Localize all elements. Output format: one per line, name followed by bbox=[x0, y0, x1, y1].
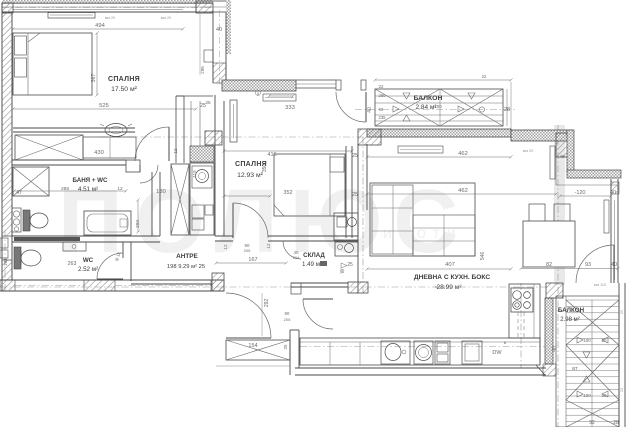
svg-text:154: 154 bbox=[248, 343, 257, 349]
svg-text:8: 8 bbox=[257, 92, 259, 96]
svg-text:ДНЕВНА С КУХН. БОКС: ДНЕВНА С КУХН. БОКС bbox=[414, 274, 490, 281]
svg-text:100: 100 bbox=[434, 104, 442, 109]
svg-text:25: 25 bbox=[352, 153, 358, 159]
svg-text:25: 25 bbox=[347, 262, 353, 268]
svg-text:12: 12 bbox=[173, 148, 178, 153]
svg-text:2.98 м²: 2.98 м² bbox=[560, 317, 579, 323]
svg-text:130: 130 bbox=[156, 189, 166, 195]
svg-text:290: 290 bbox=[135, 220, 141, 228]
svg-text:40: 40 bbox=[552, 346, 558, 352]
svg-text:82: 82 bbox=[546, 262, 552, 268]
svg-text:-120: -120 bbox=[574, 190, 585, 196]
svg-text:W: W bbox=[340, 268, 346, 273]
svg-text:20: 20 bbox=[620, 310, 624, 314]
svg-text:205: 205 bbox=[244, 248, 251, 253]
svg-text:мм 20: мм 20 bbox=[435, 285, 446, 289]
svg-text:25: 25 bbox=[205, 100, 211, 105]
svg-text:22: 22 bbox=[378, 84, 384, 89]
svg-text:12: 12 bbox=[117, 186, 123, 192]
svg-text:АНТРЕ: АНТРЕ bbox=[176, 253, 198, 260]
svg-text:462: 462 bbox=[458, 188, 468, 194]
svg-text:263: 263 bbox=[68, 261, 77, 267]
svg-text:352: 352 bbox=[283, 190, 292, 196]
svg-text:WC: WC bbox=[83, 257, 94, 264]
svg-text:198 9.29 м² 25: 198 9.29 м² 25 bbox=[167, 264, 205, 270]
svg-text:292: 292 bbox=[264, 299, 270, 308]
svg-text:295: 295 bbox=[200, 66, 205, 74]
svg-text:СПАЛНЯ: СПАЛНЯ bbox=[108, 76, 140, 83]
svg-text:25: 25 bbox=[352, 192, 358, 198]
svg-text:1.49 м²: 1.49 м² bbox=[302, 261, 322, 268]
svg-text:204: 204 bbox=[293, 255, 300, 260]
svg-text:ВТ: ВТ bbox=[572, 366, 578, 371]
svg-text:20: 20 bbox=[601, 338, 607, 343]
svg-text:205: 205 bbox=[284, 317, 291, 322]
svg-text:119: 119 bbox=[192, 170, 197, 178]
svg-text:17.50 м²: 17.50 м² bbox=[111, 86, 138, 93]
svg-text:12: 12 bbox=[266, 243, 271, 249]
svg-text:28: 28 bbox=[613, 420, 619, 426]
svg-text:Б: Б bbox=[504, 340, 507, 345]
svg-text:БАЛКОН: БАЛКОН bbox=[558, 307, 585, 314]
svg-text:БАНЯ + WC: БАНЯ + WC bbox=[73, 177, 108, 184]
svg-text:93: 93 bbox=[585, 262, 591, 268]
svg-text:280: 280 bbox=[379, 93, 387, 98]
svg-text:мм 20: мм 20 bbox=[523, 149, 534, 153]
svg-text:525: 525 bbox=[99, 103, 109, 109]
svg-text:2.52 м²: 2.52 м² bbox=[78, 266, 98, 273]
svg-text:40: 40 bbox=[610, 190, 616, 196]
svg-text:12: 12 bbox=[223, 244, 228, 250]
svg-text:407: 407 bbox=[445, 262, 455, 268]
svg-text:40: 40 bbox=[216, 27, 222, 33]
svg-text:мм 115: мм 115 bbox=[594, 283, 606, 287]
svg-text:22: 22 bbox=[482, 74, 487, 79]
svg-text:367: 367 bbox=[91, 74, 97, 83]
svg-text:167: 167 bbox=[248, 257, 257, 263]
svg-text:494: 494 bbox=[95, 23, 105, 29]
svg-text:235: 235 bbox=[379, 115, 387, 120]
svg-text:12.93 м²: 12.93 м² bbox=[237, 172, 264, 179]
svg-text:мм 20: мм 20 bbox=[161, 16, 172, 20]
svg-text:20: 20 bbox=[620, 388, 624, 392]
svg-text:101: 101 bbox=[3, 258, 9, 266]
svg-text:416: 416 bbox=[267, 152, 276, 158]
svg-text:4.51 м²: 4.51 м² bbox=[78, 186, 98, 193]
svg-text:100: 100 bbox=[583, 393, 591, 398]
svg-text:СКЛАД: СКЛАД bbox=[303, 252, 325, 259]
svg-text:288: 288 bbox=[61, 186, 69, 192]
svg-text:DW: DW bbox=[492, 350, 502, 356]
svg-text:430: 430 bbox=[94, 150, 104, 156]
svg-text:350: 350 bbox=[262, 164, 268, 173]
svg-text:90: 90 bbox=[285, 311, 290, 316]
svg-text:546: 546 bbox=[480, 252, 486, 261]
svg-text:мм 20: мм 20 bbox=[105, 16, 116, 20]
svg-text:40: 40 bbox=[559, 154, 565, 159]
svg-text:28: 28 bbox=[504, 107, 510, 113]
svg-text:имоти: имоти bbox=[383, 225, 463, 242]
svg-text:40: 40 bbox=[367, 107, 373, 113]
svg-text:100: 100 bbox=[583, 338, 591, 343]
svg-text:92: 92 bbox=[589, 420, 595, 426]
svg-text:БАЛКОН: БАЛКОН bbox=[414, 95, 443, 102]
svg-text:20: 20 bbox=[601, 393, 607, 398]
svg-text:462: 462 bbox=[458, 151, 468, 157]
svg-text:333: 333 bbox=[285, 105, 295, 111]
svg-text:40: 40 bbox=[611, 262, 617, 268]
svg-text:25: 25 bbox=[283, 344, 288, 350]
svg-text:90: 90 bbox=[379, 107, 384, 112]
